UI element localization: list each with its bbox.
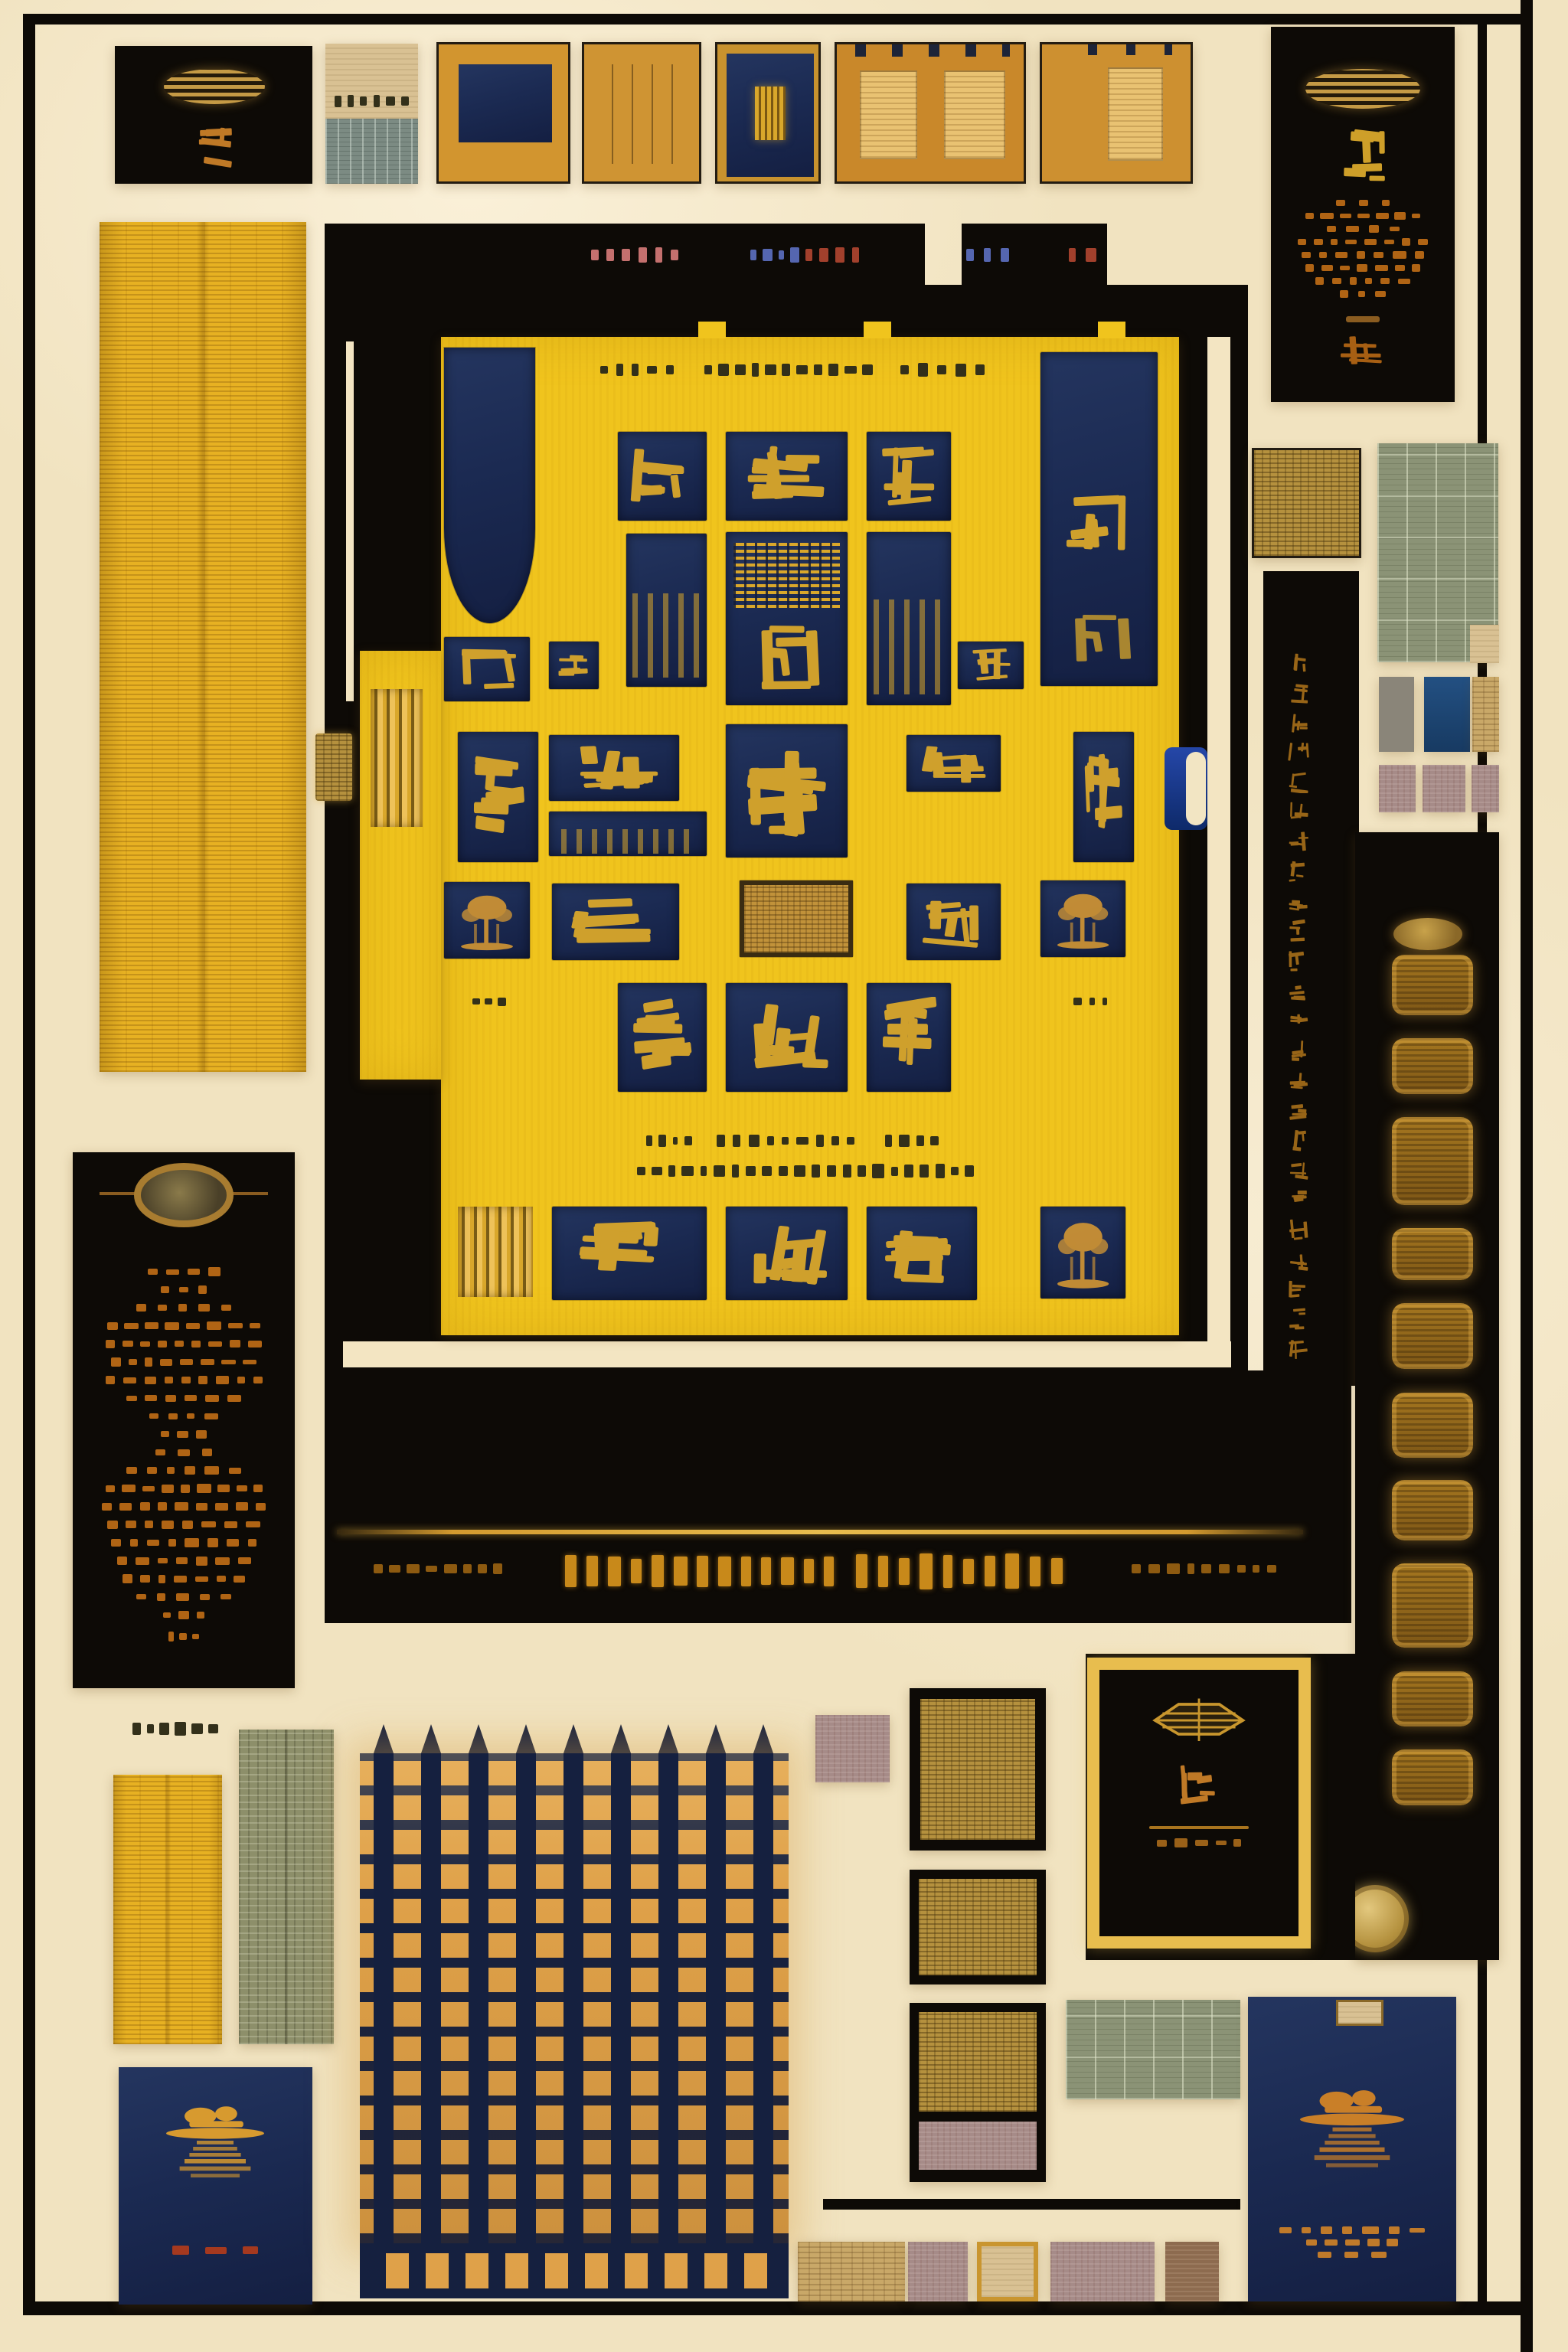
glyph-dash xyxy=(253,1485,262,1492)
tile-tree xyxy=(1040,1207,1125,1298)
tile-glyph xyxy=(549,642,599,689)
glyph-dash xyxy=(122,1574,132,1583)
glyph-dash xyxy=(1306,2239,1317,2246)
glyph-dash xyxy=(202,1449,213,1456)
glyph-dash xyxy=(165,1377,173,1383)
lattice-base xyxy=(360,2243,789,2298)
pagoda-right-caption-dash xyxy=(1306,2239,1398,2246)
glyph-dash xyxy=(646,1135,652,1147)
lantern-script xyxy=(1157,1838,1241,1847)
left-text-line xyxy=(122,1574,245,1583)
glyph-dash xyxy=(145,1357,152,1367)
glyph-dash xyxy=(1315,277,1324,285)
window-lite-3 xyxy=(1108,67,1163,161)
glyph-dash xyxy=(732,1165,740,1178)
panel-glyph-block xyxy=(715,42,821,184)
lattice-base-slot xyxy=(386,2253,409,2288)
glyph-dash xyxy=(1375,291,1386,297)
lattice-grid xyxy=(360,1753,789,2243)
stamp xyxy=(1392,1228,1473,1280)
tiny-mark xyxy=(1073,995,1107,1008)
tile-glyph xyxy=(566,743,662,792)
glyph-dash xyxy=(1394,212,1405,220)
vertical-glyph-column xyxy=(1288,651,1311,1370)
navy-right-tan-tile xyxy=(1336,2000,1383,2026)
panel-yellow-weave xyxy=(100,222,306,1072)
lattice-base-slot xyxy=(426,2253,449,2288)
lattice-bar xyxy=(421,1753,441,2243)
lantern-glyph xyxy=(1178,1756,1220,1808)
glyph-dash xyxy=(256,1503,266,1511)
glyph-dash xyxy=(253,1377,263,1383)
tree-icon xyxy=(451,887,523,954)
gold-tab xyxy=(315,733,352,801)
glyph-dash xyxy=(1371,2252,1387,2258)
glyph-dash xyxy=(179,1287,188,1292)
glyph-dash xyxy=(401,96,409,106)
glyph-dash xyxy=(1375,265,1388,271)
glyph-dash xyxy=(684,1136,692,1146)
glyph-dash xyxy=(1402,238,1410,246)
lens-panel-glyph xyxy=(194,121,234,170)
pagoda-emblem-icon xyxy=(154,2098,276,2190)
vertical-glyph xyxy=(1288,860,1309,883)
glyph-dash xyxy=(794,1165,805,1177)
glyph-dash xyxy=(149,1413,158,1419)
glyph-dash xyxy=(951,1167,958,1175)
glyph-dash xyxy=(124,1323,139,1329)
glyph-dash xyxy=(975,364,985,375)
swatch-mauve-square xyxy=(815,1715,890,1782)
left-text-line xyxy=(155,1448,213,1457)
glyph-dash xyxy=(1357,251,1365,259)
glyph-dash xyxy=(782,364,790,375)
glyph-dash xyxy=(123,1377,137,1383)
glyph-dash xyxy=(145,1322,158,1329)
vertical-glyph xyxy=(1288,1069,1309,1092)
glyph-dash xyxy=(166,1269,179,1275)
glyph-dash xyxy=(717,1135,725,1146)
pagoda-emblem-right-icon xyxy=(1287,2081,1417,2180)
tile-mark xyxy=(472,995,506,1008)
glyph-dash xyxy=(248,1539,256,1547)
glyph-dash xyxy=(1369,225,1379,233)
glyph-dash xyxy=(200,1594,211,1601)
glyph-dash xyxy=(185,1538,198,1547)
tile-glyph xyxy=(1062,485,1137,559)
glyph-dash xyxy=(248,1341,262,1347)
glyph-dash xyxy=(1195,1840,1209,1847)
lattice-bar xyxy=(469,1753,488,2243)
glyph-dash xyxy=(130,1539,138,1547)
glyph-dash xyxy=(234,1576,245,1583)
glyph-dash xyxy=(147,1467,157,1474)
glyph-dash xyxy=(178,1611,188,1619)
glyph-dash xyxy=(916,1135,924,1146)
lattice-base-slot xyxy=(505,2253,528,2288)
glyph-dash xyxy=(147,1724,154,1734)
glyph-dash xyxy=(1412,264,1420,271)
lattice-base-slot xyxy=(744,2253,767,2288)
swatch-mauve-2 xyxy=(1423,765,1465,812)
glyph-dash xyxy=(217,1576,226,1582)
tile-glyph xyxy=(1067,612,1132,666)
glyph-dash xyxy=(161,1431,169,1437)
glyph-dash xyxy=(198,1376,207,1384)
left-text-line xyxy=(149,1412,218,1421)
swatch-grey xyxy=(1379,677,1414,752)
glyph-dash xyxy=(1157,1840,1167,1847)
glyph-dash xyxy=(205,1395,220,1402)
glyph-dash xyxy=(238,1557,251,1564)
bottom-left-label xyxy=(132,1721,218,1736)
tile-glyph xyxy=(919,743,988,785)
lattice-base-slot xyxy=(545,2253,568,2288)
lattice-spike-icon xyxy=(563,1724,583,1753)
vertical-glyph xyxy=(1288,1099,1309,1122)
lattice-spike-icon xyxy=(611,1724,631,1753)
glyph-dash xyxy=(198,1285,207,1295)
tatami-inner-1 xyxy=(920,1699,1035,1840)
glyph-dash xyxy=(1314,239,1323,245)
glyph-dash xyxy=(168,1539,176,1547)
glyph-dash xyxy=(1393,251,1407,259)
glyph-dash xyxy=(658,1135,666,1147)
vertical-glyph xyxy=(1288,770,1309,793)
glyph-dash xyxy=(1089,998,1096,1004)
lattice-bar xyxy=(563,1753,583,2243)
glyph-dash xyxy=(600,366,608,374)
glyph-dash xyxy=(472,998,480,1005)
split-glyph-row xyxy=(335,94,409,108)
left-text-line xyxy=(106,1376,263,1385)
glyph-dash xyxy=(208,1267,220,1276)
tiny-mark xyxy=(472,995,506,1008)
glyph-dash xyxy=(1358,291,1365,297)
glyph-dash xyxy=(126,1521,136,1528)
glyph-dash xyxy=(191,1341,201,1347)
vertical-glyph xyxy=(1288,1188,1309,1211)
split-bottom-swatch xyxy=(325,119,418,184)
emblem-line xyxy=(1336,199,1390,207)
glyph-dash xyxy=(752,363,759,377)
glyph-dash xyxy=(136,1557,149,1565)
tile-glyph xyxy=(726,724,848,857)
stamp xyxy=(1392,955,1473,1015)
tile-glyph xyxy=(877,443,939,509)
glyph-dash xyxy=(197,1612,204,1619)
glyph-dash xyxy=(1362,2226,1379,2234)
glyph-dash xyxy=(155,1449,166,1455)
glyph-dash xyxy=(831,1136,839,1145)
glyph-dash xyxy=(178,1449,191,1456)
glyph-dash xyxy=(158,1558,168,1563)
glyph-dash xyxy=(1340,214,1351,218)
glyph-dash xyxy=(181,1485,191,1493)
glyph-dash xyxy=(161,1286,169,1293)
swatch-sage-grid-2 xyxy=(1066,2000,1240,2099)
left-text-line xyxy=(117,1557,251,1566)
pagoda-right-caption xyxy=(1279,2226,1426,2260)
bar-upper-1 xyxy=(325,224,925,285)
glyph-dash xyxy=(1332,278,1341,284)
left-text-line xyxy=(126,1393,241,1403)
tile-glyph xyxy=(569,893,663,950)
glyph-dash xyxy=(195,1576,209,1582)
cream-strip-under-yellow xyxy=(343,1341,1231,1367)
emblem-text-lines xyxy=(1286,199,1439,306)
glyph-dash xyxy=(175,1341,184,1347)
lattice-spike-icon xyxy=(658,1724,678,1753)
glyph-dash xyxy=(955,364,966,377)
glyph-dash xyxy=(187,1413,194,1419)
glyph-dash xyxy=(862,364,873,375)
glyph-dash xyxy=(204,1413,218,1419)
tile-brown xyxy=(1165,2242,1219,2301)
glyph-dash xyxy=(228,1323,243,1328)
tile-plaque xyxy=(740,880,853,957)
glyph-dash xyxy=(182,1521,193,1529)
emblem-line xyxy=(1327,225,1400,233)
tile-glyph xyxy=(966,648,1015,683)
glyph-dash xyxy=(168,1632,174,1641)
glyph-dash xyxy=(965,1165,974,1176)
glyph-dash xyxy=(140,1575,150,1583)
yellow-footer-cluster xyxy=(717,1135,854,1147)
glyph-dash xyxy=(814,364,822,374)
vertical-glyph xyxy=(1288,1248,1309,1271)
lantern-gold-frame xyxy=(1087,1658,1311,1949)
lantern-script-dash xyxy=(1157,1838,1241,1847)
glyph-dash xyxy=(215,1503,228,1511)
glyph-dash xyxy=(106,1340,115,1348)
tile-mauve-1 xyxy=(908,2242,968,2301)
glyph-dash xyxy=(132,1723,141,1736)
glyph-dash xyxy=(179,1633,187,1640)
glyph-dash xyxy=(207,1538,217,1547)
left-text-tail xyxy=(168,1632,199,1641)
vertical-glyph xyxy=(1288,890,1309,913)
glyph-dash xyxy=(637,1167,645,1175)
glyph-dash xyxy=(1342,2226,1352,2234)
emblem-line xyxy=(1315,277,1411,285)
window-lite-1 xyxy=(860,70,917,159)
glyph-dash xyxy=(666,365,674,375)
tile-glyph xyxy=(867,983,951,1092)
vertical-glyph xyxy=(1288,710,1309,733)
tile-glyph xyxy=(906,735,1001,792)
vertical-glyph xyxy=(1288,740,1309,763)
cream-line-right xyxy=(1207,337,1230,1341)
glyph-dash xyxy=(1345,2239,1360,2246)
window-notches xyxy=(855,44,1010,57)
left-text-line xyxy=(102,1502,266,1511)
glyph-dash xyxy=(208,1724,218,1733)
yellow-footer-cluster xyxy=(646,1135,692,1147)
glyph-dash xyxy=(197,1484,211,1493)
tile-tree xyxy=(444,882,530,959)
glyph-dash xyxy=(243,1360,256,1365)
glyph-dash xyxy=(816,1135,824,1146)
glyph-dash xyxy=(175,1722,185,1735)
glyph-dash xyxy=(1398,279,1410,284)
emblem-line xyxy=(1305,264,1420,272)
left-text-line xyxy=(161,1285,207,1295)
vertical-glyph xyxy=(1288,1218,1309,1241)
glyph-dash xyxy=(237,1485,247,1491)
left-text-line xyxy=(161,1429,207,1439)
glyph-dash xyxy=(102,1503,112,1511)
glyph-dash xyxy=(1359,200,1369,205)
yellow-notch-2 xyxy=(864,322,891,338)
yellow-header-cluster xyxy=(704,363,873,377)
left-text-line xyxy=(126,1466,241,1475)
glyph-dash xyxy=(1073,998,1082,1005)
lattice-bar xyxy=(611,1753,631,2243)
glyph-dash xyxy=(126,1467,137,1474)
glyph-dash xyxy=(616,364,622,377)
lattice-bar xyxy=(706,1753,726,2243)
glyph-dash xyxy=(129,1359,138,1365)
vertical-glyph xyxy=(1288,1158,1309,1181)
border-right-thick xyxy=(1521,0,1533,2352)
framed-tatami-2 xyxy=(910,1870,1046,1984)
glyph-dash xyxy=(335,96,341,107)
glyph-dash xyxy=(216,1376,229,1385)
tile-glyph xyxy=(552,884,679,960)
pagoda-left-caption xyxy=(172,2245,258,2256)
tile-pillars xyxy=(626,534,707,687)
lattice-spike-icon xyxy=(753,1724,773,1753)
glyph-dash xyxy=(188,1269,200,1275)
glyph-dash xyxy=(224,1521,237,1529)
glyph-dash xyxy=(196,1430,207,1439)
glyph-dash xyxy=(176,1593,189,1601)
lattice-bar xyxy=(658,1753,678,2243)
tatami-inner-2 xyxy=(919,1879,1037,1975)
seal-oval-icon xyxy=(134,1163,234,1227)
yellow-header-cluster xyxy=(900,363,985,377)
glyph-dash xyxy=(498,998,506,1006)
glyph-dash xyxy=(652,1167,662,1175)
glyph-block-gold-icon xyxy=(755,87,786,140)
glyph-dash xyxy=(172,2246,189,2255)
glyph-dash xyxy=(145,1377,157,1384)
yellow-notch-3 xyxy=(1098,322,1125,338)
glyph-dash xyxy=(159,1723,168,1734)
panel-emblem-tall xyxy=(1271,27,1455,402)
glyph-dash xyxy=(920,1165,929,1178)
glyph-dash xyxy=(1327,226,1337,232)
lattice-base-slot xyxy=(704,2253,727,2288)
bar-upper-2 xyxy=(962,224,1107,285)
glyph-dash xyxy=(217,1485,230,1492)
vertical-glyph xyxy=(1288,1278,1309,1301)
navy-inset-square xyxy=(459,64,552,142)
glyph-dash xyxy=(1318,2252,1331,2259)
tile-pillars xyxy=(867,532,951,705)
glyph-dash xyxy=(1389,2226,1400,2234)
tile-pillars xyxy=(549,812,707,856)
lattice-spike-icon xyxy=(516,1724,536,1753)
swatch-mauve-1 xyxy=(1379,765,1416,812)
tile-glyph xyxy=(742,997,832,1077)
glyph-dash xyxy=(180,1359,194,1366)
swatch-blue xyxy=(1424,677,1470,752)
glyph-dash xyxy=(176,1557,188,1565)
glyph-dash xyxy=(900,365,909,374)
pagoda-right-caption-dash xyxy=(1318,2251,1387,2259)
yellow-footer-cluster xyxy=(885,1135,939,1147)
lantern-divider xyxy=(1149,1826,1249,1829)
stamp-column xyxy=(1392,955,1473,1950)
glyph-dash xyxy=(1344,2252,1357,2258)
glyph-dash xyxy=(196,1503,207,1511)
central-band xyxy=(325,1370,1351,1623)
split-dash xyxy=(335,94,409,108)
tile-pillars-texture xyxy=(874,599,944,694)
tile-glyph xyxy=(742,742,832,841)
glyph-dash xyxy=(1340,266,1349,270)
glyph-dash xyxy=(668,1165,675,1177)
glyph-dash xyxy=(485,998,493,1005)
glyph-dash xyxy=(714,1165,725,1177)
glyph-dash xyxy=(106,1376,115,1385)
tile-glyph xyxy=(1073,732,1134,862)
glyph-dash xyxy=(198,1304,210,1312)
glyph-dash xyxy=(1390,227,1400,231)
glyph-dash xyxy=(205,2247,227,2254)
tile-glyph xyxy=(958,642,1024,689)
tile-glyph xyxy=(456,645,519,693)
glyph-dash xyxy=(250,1323,260,1328)
lantern-ornament-icon xyxy=(1145,1697,1253,1743)
glyph-dash xyxy=(937,365,947,374)
window-lite-2 xyxy=(944,70,1005,159)
panel-navy-in-gold xyxy=(436,42,570,184)
lattice-base-slot xyxy=(665,2253,688,2288)
glyph-dash xyxy=(767,1136,774,1145)
tan-wedge xyxy=(1470,625,1499,663)
tile-glyph xyxy=(906,884,1001,960)
emblem-line xyxy=(1302,251,1424,259)
panel-stamps xyxy=(1355,832,1499,1960)
glyph-dash xyxy=(145,1521,153,1528)
glyph-dash xyxy=(1384,240,1394,245)
glyph-dash xyxy=(1412,214,1420,218)
tile-glyph xyxy=(618,983,707,1092)
tile-glyph xyxy=(867,1207,977,1300)
glyph-dash xyxy=(246,1521,260,1527)
glyph-dash xyxy=(904,1165,913,1177)
tile-mark xyxy=(1073,995,1107,1008)
glyph-dash xyxy=(229,1468,241,1474)
lattice-base-slot xyxy=(465,2253,488,2288)
tile-gold-framed xyxy=(977,2242,1038,2301)
glyph-dash xyxy=(1336,200,1345,205)
panel-pagoda-left xyxy=(119,2067,312,2305)
glyph-dash xyxy=(111,1357,121,1366)
lattice-spike-icon xyxy=(469,1724,488,1753)
glyph-dash xyxy=(1345,240,1357,244)
glyph-dash xyxy=(735,364,746,375)
glyph-dash xyxy=(1357,264,1367,271)
lattice-bar xyxy=(516,1753,536,2243)
left-text-line xyxy=(136,1592,232,1602)
glyph-dash xyxy=(1357,214,1370,218)
glyph-dash xyxy=(1418,239,1428,245)
glyph-dash xyxy=(111,1539,121,1547)
